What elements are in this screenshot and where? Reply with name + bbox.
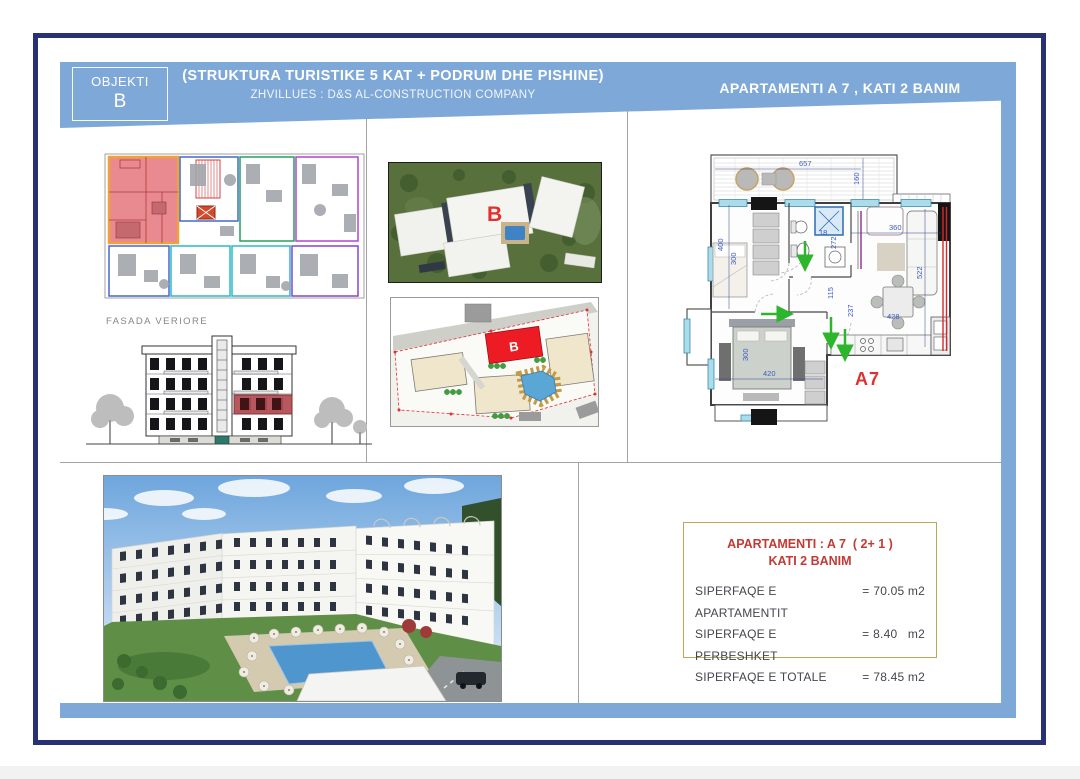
info-row-common-area: SIPERFAQE E PERBESHKET = 8.40 m2 (684, 624, 936, 667)
divider-h1 (60, 462, 1001, 463)
row-value: 78.45 m2 (873, 667, 925, 689)
row-value: 70.05 m2 (873, 581, 925, 624)
render-figure (103, 475, 502, 702)
info-rows: SIPERFAQE E APARTAMENTIT = 70.05 m2 SIPE… (684, 581, 936, 689)
apartment-a7-plan-figure: 657 160 400 300 18 272 360 522 115 237 4… (655, 147, 1005, 460)
objekti-letter: B (114, 92, 127, 113)
divider-v2 (627, 110, 628, 462)
side-balcony (687, 309, 711, 365)
aerial-photo-figure: B (388, 162, 602, 283)
dim-dining-w: 428 (887, 312, 900, 321)
dim-wc-d: 272 (829, 236, 838, 249)
aerial-building-label: B (487, 203, 502, 226)
divider-v3 (578, 463, 579, 703)
facade-label: FASADA VERIORE (106, 316, 208, 327)
dim-bed2-d: 300 (741, 348, 750, 361)
dim-balcony-d: 160 (852, 172, 861, 185)
row-equals: = (858, 667, 873, 689)
info-title-line1: APARTAMENTI : A 7 ( 2+ 1 ) (684, 536, 936, 553)
dim-living-d: 522 (915, 266, 924, 279)
elevation-building (142, 336, 296, 444)
project-title: (STRUKTURA TURISTIKE 5 KAT + PODRUM DHE … (178, 68, 608, 84)
info-row-apartment-area: SIPERFAQE E APARTAMENTIT = 70.05 m2 (684, 581, 936, 624)
north-elevation-figure (84, 330, 374, 452)
row-equals: = (858, 624, 873, 667)
dim-hall-d: 237 (846, 304, 855, 317)
info-title-line2: KATI 2 BANIM (684, 553, 936, 570)
highlighted-unit (109, 157, 178, 243)
apartment-info-box: APARTAMENTI : A 7 ( 2+ 1 ) KATI 2 BANIM … (683, 522, 937, 658)
objekti-box: OBJEKTI B (72, 67, 168, 121)
dim-hall-w: 115 (826, 287, 835, 299)
dim-living-w: 360 (889, 223, 902, 232)
apartment-title: APARTAMENTI A 7 , KATI 2 BANIM (700, 80, 980, 96)
info-row-total-area: SIPERFAQE E TOTALE = 78.45 m2 (684, 667, 936, 689)
row-equals: = (858, 581, 873, 624)
presentation-sheet: OBJEKTI B (STRUKTURA TURISTIKE 5 KAT + P… (0, 0, 1080, 779)
dim-wc-w: 18 (819, 228, 827, 237)
apartment-plan-label: A7 (855, 369, 880, 389)
scan-edge (0, 766, 1080, 779)
row-label: SIPERFAQE E APARTAMENTIT (695, 581, 858, 624)
dim-balcony-w: 657 (799, 159, 812, 168)
developer-line: ZHVILLUES : D&S AL-CONSTRUCTION COMPANY (178, 89, 608, 101)
row-label: SIPERFAQE E TOTALE (695, 667, 858, 689)
objekti-label: OBJEKTI (91, 75, 149, 89)
row-value: 8.40 m2 (873, 624, 925, 667)
site-plan-figure: B (390, 297, 599, 427)
bottom-band (60, 703, 1016, 718)
row-label: SIPERFAQE E PERBESHKET (695, 624, 858, 667)
dim-bed1-w: 400 (716, 238, 725, 251)
typical-floor-plan-figure (100, 150, 372, 302)
dim-bed2-w: 420 (763, 369, 776, 378)
header-title-block: (STRUKTURA TURISTIKE 5 KAT + PODRUM DHE … (178, 68, 608, 101)
dim-bed1-d: 300 (729, 252, 738, 265)
